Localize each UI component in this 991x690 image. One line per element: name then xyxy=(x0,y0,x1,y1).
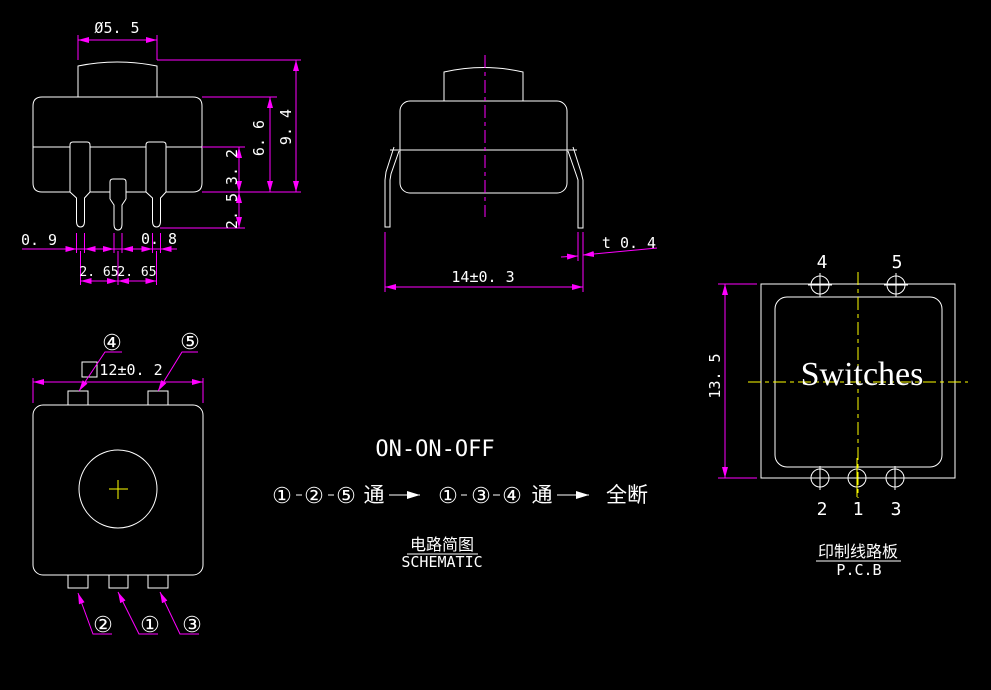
leader-line-terminal-5 xyxy=(158,352,198,391)
pcb-brand-text: Switches xyxy=(801,356,924,393)
front-view: 14±0. 3 t 0. 4 xyxy=(385,55,657,292)
side-button-outline xyxy=(78,62,157,97)
front-button-outline xyxy=(444,68,523,102)
dim-bottom-size: 12±0. 2 xyxy=(99,361,162,379)
bottom-center-cross xyxy=(109,480,128,499)
pcb-view: Switches 4 5 2 1 3 13. 5 印制线路板 P.C.B xyxy=(706,252,968,579)
state2-on-text: 通 xyxy=(532,483,553,507)
dim-pin-shoulder: 3. 2 xyxy=(223,149,241,185)
dim-pcb-height: 13. 5 xyxy=(706,353,724,398)
pcb-hole-label-4: 4 xyxy=(817,252,828,273)
front-leg-right xyxy=(568,147,583,228)
extension-lines-knob xyxy=(78,35,157,60)
bottom-tab-5 xyxy=(148,391,168,405)
bottom-view: 12±0. 2 ④ ⑤ ② ① ③ xyxy=(33,330,203,638)
switch-engineering-drawing: Ø5. 5 9. 4 6. 6 3. 2 2. 5 0. 9 0. 8 2. 6… xyxy=(0,0,991,690)
front-leg-left xyxy=(385,147,399,227)
bottom-tab-2 xyxy=(68,575,88,588)
front-body-outline xyxy=(400,101,567,193)
schematic-caption-cn: 电路简图 xyxy=(410,535,474,554)
all-off-text: 全断 xyxy=(606,483,648,507)
terminal-label-5: ⑤ xyxy=(180,330,200,355)
arrow-stub-leg xyxy=(561,256,578,257)
state2-pin-b: ③ xyxy=(471,484,491,509)
side-pin-right xyxy=(146,142,166,227)
dim-pin-tip-len: 2. 5 xyxy=(223,193,241,229)
pcb-hole-label-5: 5 xyxy=(892,252,903,273)
pcb-hole-label-2: 2 xyxy=(817,499,828,520)
dim-front-width: 14±0. 3 xyxy=(451,268,514,286)
schematic: ON-ON-OFF ① ② ⑤ 通 ① ③ ④ 通 全断 电路简图 SCHEMA… xyxy=(272,437,648,571)
bottom-tab-3 xyxy=(148,575,168,588)
state1-pin-c: ⑤ xyxy=(336,484,356,509)
side-pin-left xyxy=(70,142,90,227)
side-view: Ø5. 5 9. 4 6. 6 3. 2 2. 5 0. 9 0. 8 2. 6… xyxy=(21,19,301,285)
pcb-hole-3-cross xyxy=(883,466,907,490)
dim-body-height: 6. 6 xyxy=(250,120,268,156)
bottom-tab-4 xyxy=(68,391,88,405)
schematic-title: ON-ON-OFF xyxy=(375,437,494,462)
dim-pitch-right: 2. 65 xyxy=(117,265,156,280)
state1-pin-b: ② xyxy=(304,484,324,509)
dim-pitch-left: 2. 65 xyxy=(79,265,118,280)
pcb-hole-label-1: 1 xyxy=(853,499,864,520)
pcb-hole-label-3: 3 xyxy=(891,499,902,520)
state1-on-text: 通 xyxy=(364,483,385,507)
dim-total-height: 9. 4 xyxy=(277,109,295,145)
state2-pin-a: ① xyxy=(438,484,458,509)
dim-knob-dia: Ø5. 5 xyxy=(94,19,139,37)
dim-pin-width-left: 0. 9 xyxy=(21,231,57,249)
cad-drawing-canvas: Ø5. 5 9. 4 6. 6 3. 2 2. 5 0. 9 0. 8 2. 6… xyxy=(0,0,991,690)
pcb-hole-5-cross xyxy=(884,273,908,297)
pcb-caption-en: P.C.B xyxy=(836,561,881,579)
bottom-tab-1 xyxy=(109,575,128,588)
state1-pin-a: ① xyxy=(272,484,292,509)
dim-pin-width-right: 0. 8 xyxy=(141,230,177,248)
side-pin-middle xyxy=(110,179,126,230)
pcb-hole-4-cross xyxy=(808,273,832,297)
pcb-hole-2-cross xyxy=(808,466,832,490)
dim-terminal-thickness: t 0. 4 xyxy=(602,234,656,252)
schematic-caption-en: SCHEMATIC xyxy=(401,553,482,571)
pcb-caption-cn: 印制线路板 xyxy=(818,542,898,561)
state2-pin-c: ④ xyxy=(502,484,522,509)
side-body-outline xyxy=(33,97,202,192)
